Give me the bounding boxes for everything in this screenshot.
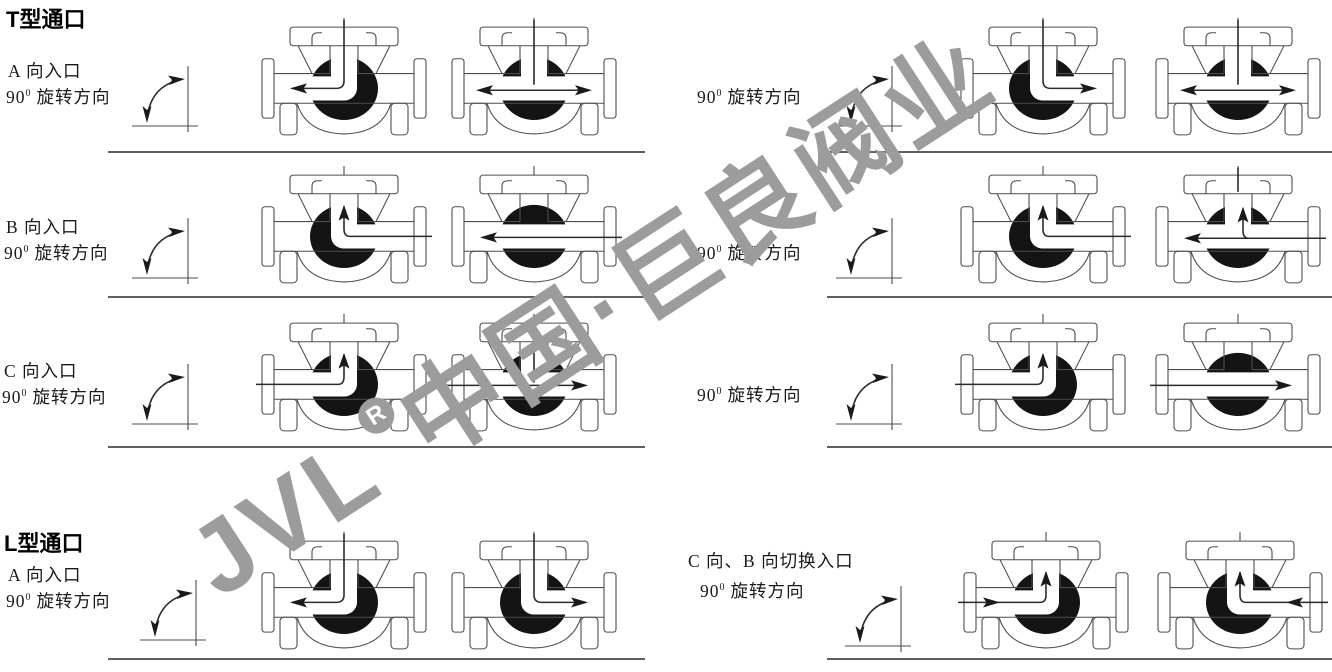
valve-diagram bbox=[256, 164, 432, 294]
rotation-90-icon bbox=[140, 580, 210, 652]
section-title-l-port: L型通口 bbox=[4, 526, 83, 558]
rot-text: 旋转方向 bbox=[35, 243, 109, 263]
deg-sup: 0 bbox=[717, 386, 723, 397]
row-divider bbox=[108, 296, 645, 298]
rotation-direction-label: 900旋转方向 bbox=[700, 578, 805, 603]
valve-diagram bbox=[256, 312, 432, 442]
row-divider bbox=[827, 446, 1332, 448]
row-divider bbox=[827, 151, 1332, 153]
valve-diagram bbox=[955, 312, 1131, 442]
valve-diagram bbox=[1152, 530, 1328, 660]
rotation-90-icon bbox=[836, 66, 906, 138]
valve-diagram bbox=[955, 164, 1131, 294]
rot-text: 旋转方向 bbox=[728, 385, 802, 405]
deg-sup: 0 bbox=[717, 88, 723, 99]
row-entry-label: C 向入口 bbox=[4, 358, 78, 383]
rotation-direction-label: 900旋转方向 bbox=[6, 588, 111, 613]
rot-text: 旋转方向 bbox=[728, 87, 802, 107]
deg-value: 90 bbox=[700, 581, 720, 601]
rotation-90-icon bbox=[132, 218, 202, 290]
valve-diagram bbox=[1150, 164, 1326, 294]
deg-sup: 0 bbox=[22, 388, 28, 399]
row-divider bbox=[827, 296, 1332, 298]
rot-text: 旋转方向 bbox=[33, 387, 107, 407]
deg-sup: 0 bbox=[26, 88, 32, 99]
deg-value: 90 bbox=[2, 387, 22, 407]
valve-flow-diagram-canvas: T型通口 L型通口 A 向入口 900旋转方向 B 向入口 900旋转方向 C … bbox=[0, 0, 1332, 672]
rotation-direction-label: 900旋转方向 bbox=[697, 382, 802, 407]
row-entry-label: C 向、B 向切换入口 bbox=[688, 548, 854, 573]
rotation-direction-label: 900旋转方向 bbox=[697, 84, 802, 109]
valve-diagram bbox=[446, 530, 622, 660]
deg-value: 90 bbox=[697, 243, 717, 263]
rotation-90-icon bbox=[132, 364, 202, 436]
valve-diagram bbox=[958, 530, 1134, 660]
rotation-direction-label: 900旋转方向 bbox=[6, 84, 111, 109]
row-divider bbox=[108, 151, 645, 153]
valve-diagram bbox=[1150, 16, 1326, 146]
deg-sup: 0 bbox=[720, 582, 726, 593]
deg-value: 90 bbox=[697, 385, 717, 405]
valve-diagram bbox=[446, 312, 622, 442]
deg-sup: 0 bbox=[24, 244, 30, 255]
valve-diagram bbox=[446, 16, 622, 146]
valve-diagram bbox=[256, 16, 432, 146]
row-divider bbox=[108, 446, 645, 448]
deg-value: 90 bbox=[6, 87, 26, 107]
rotation-90-icon bbox=[132, 66, 202, 138]
section-title-t-port: T型通口 bbox=[6, 2, 85, 34]
deg-value: 90 bbox=[697, 87, 717, 107]
rot-text: 旋转方向 bbox=[728, 243, 802, 263]
valve-diagram bbox=[446, 164, 622, 294]
rotation-direction-label: 900旋转方向 bbox=[2, 384, 107, 409]
rotation-90-icon bbox=[836, 364, 906, 436]
rotation-direction-label: 900旋转方向 bbox=[4, 240, 109, 265]
deg-sup: 0 bbox=[717, 244, 723, 255]
row-entry-label: A 向入口 bbox=[8, 58, 82, 83]
valve-diagram bbox=[256, 530, 432, 660]
rotation-90-icon bbox=[845, 586, 915, 658]
deg-value: 90 bbox=[4, 243, 24, 263]
row-entry-label: B 向入口 bbox=[6, 214, 80, 239]
rot-text: 旋转方向 bbox=[37, 87, 111, 107]
row-divider bbox=[827, 658, 1332, 660]
rotation-90-icon bbox=[836, 218, 906, 290]
valve-diagram bbox=[1150, 312, 1326, 442]
deg-sup: 0 bbox=[26, 592, 32, 603]
deg-value: 90 bbox=[6, 591, 26, 611]
rotation-direction-label: 900旋转方向 bbox=[697, 240, 802, 265]
row-entry-label: A 向入口 bbox=[8, 562, 82, 587]
row-divider bbox=[108, 658, 645, 660]
rot-text: 旋转方向 bbox=[731, 581, 805, 601]
rot-text: 旋转方向 bbox=[37, 591, 111, 611]
valve-diagram bbox=[955, 16, 1131, 146]
